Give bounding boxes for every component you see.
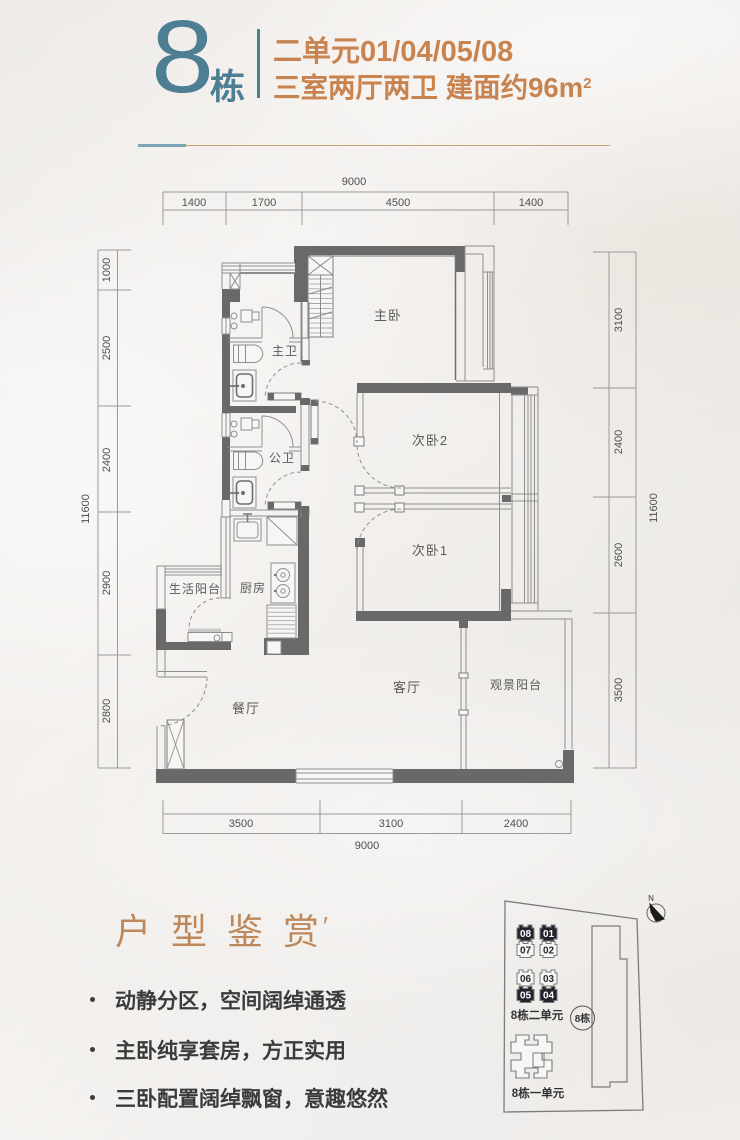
svg-text:1400: 1400: [182, 197, 206, 209]
svg-text:8栋二单元: 8栋二单元: [511, 1008, 564, 1022]
svg-text:4500: 4500: [386, 197, 410, 209]
svg-text:餐厅: 餐厅: [232, 701, 260, 716]
svg-text:2400: 2400: [613, 430, 625, 454]
svg-text:8栋一单元: 8栋一单元: [512, 1086, 565, 1100]
svg-text:2400: 2400: [504, 818, 528, 830]
svg-text:11600: 11600: [648, 493, 660, 523]
svg-text:06: 06: [520, 974, 532, 985]
svg-text:8栋: 8栋: [575, 1012, 591, 1025]
svg-text:3500: 3500: [613, 678, 625, 702]
svg-text:03: 03: [543, 974, 555, 985]
svg-text:主卧: 主卧: [374, 308, 402, 323]
svg-text:2900: 2900: [101, 571, 113, 595]
svg-text:01: 01: [543, 929, 555, 940]
svg-text:2800: 2800: [101, 699, 113, 723]
svg-text:05: 05: [520, 991, 532, 1002]
svg-text:观景阳台: 观景阳台: [490, 677, 542, 692]
svg-text:1000: 1000: [101, 258, 113, 282]
svg-text:9000: 9000: [355, 840, 379, 852]
svg-text:1400: 1400: [519, 197, 543, 209]
svg-text:生活阳台: 生活阳台: [169, 581, 221, 596]
svg-text:9000: 9000: [342, 176, 366, 188]
svg-text:2600: 2600: [613, 543, 625, 567]
svg-text:11600: 11600: [80, 494, 92, 524]
svg-text:1700: 1700: [252, 197, 276, 209]
svg-text:07: 07: [520, 946, 532, 957]
svg-text:08: 08: [520, 929, 532, 940]
svg-text:3100: 3100: [379, 818, 403, 830]
svg-text:次卧1: 次卧1: [412, 543, 448, 558]
svg-text:3100: 3100: [613, 308, 625, 332]
svg-text:厨房: 厨房: [240, 580, 266, 595]
svg-text:公卫: 公卫: [269, 451, 295, 465]
svg-text:客厅: 客厅: [393, 680, 421, 695]
svg-text:2500: 2500: [101, 336, 113, 360]
svg-text:N: N: [648, 894, 654, 903]
svg-text:次卧2: 次卧2: [412, 433, 448, 448]
svg-text:主卫: 主卫: [272, 344, 298, 358]
svg-text:04: 04: [543, 991, 555, 1002]
svg-text:3500: 3500: [229, 818, 253, 830]
svg-text:2400: 2400: [101, 448, 113, 472]
svg-text:02: 02: [543, 946, 555, 957]
